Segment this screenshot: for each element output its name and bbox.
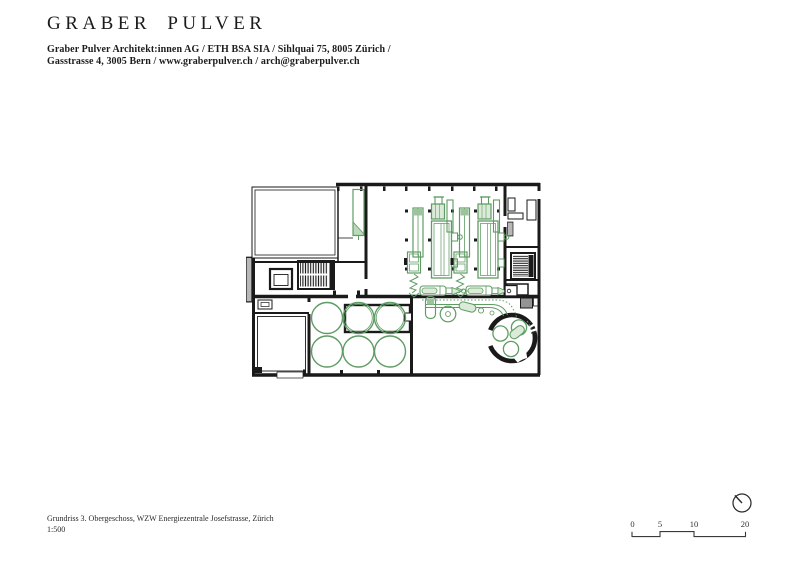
floor-plan-canvas: 0 5 10 20 <box>0 0 800 565</box>
hvac-duct <box>353 190 364 241</box>
floor-plan-drawing <box>246 183 542 378</box>
caption-title: Grundriss 3. Obergeschoss, WZW Energieze… <box>47 513 274 524</box>
scale-bar: 0 5 10 20 <box>630 519 749 537</box>
scale-label-0: 0 <box>630 519 634 529</box>
scale-label-5: 5 <box>658 519 662 529</box>
scale-label-10: 10 <box>690 519 699 529</box>
chp-machine-unit-2 <box>451 197 509 297</box>
stair-east <box>511 253 535 279</box>
walls <box>246 183 542 378</box>
north-arrow-icon <box>733 494 751 512</box>
drawing-caption: Grundriss 3. Obergeschoss, WZW Energieze… <box>47 513 274 535</box>
caption-scale: 1:500 <box>47 524 274 535</box>
storage-tanks <box>312 303 406 368</box>
drawing-sheet: { "header": { "logo": "GRABER PULVER", "… <box>0 0 800 565</box>
pump-units <box>420 286 517 297</box>
stair-northwest <box>298 261 334 289</box>
round-tank-assembly <box>489 315 535 361</box>
elevator <box>270 269 292 289</box>
scale-label-20: 20 <box>741 519 750 529</box>
